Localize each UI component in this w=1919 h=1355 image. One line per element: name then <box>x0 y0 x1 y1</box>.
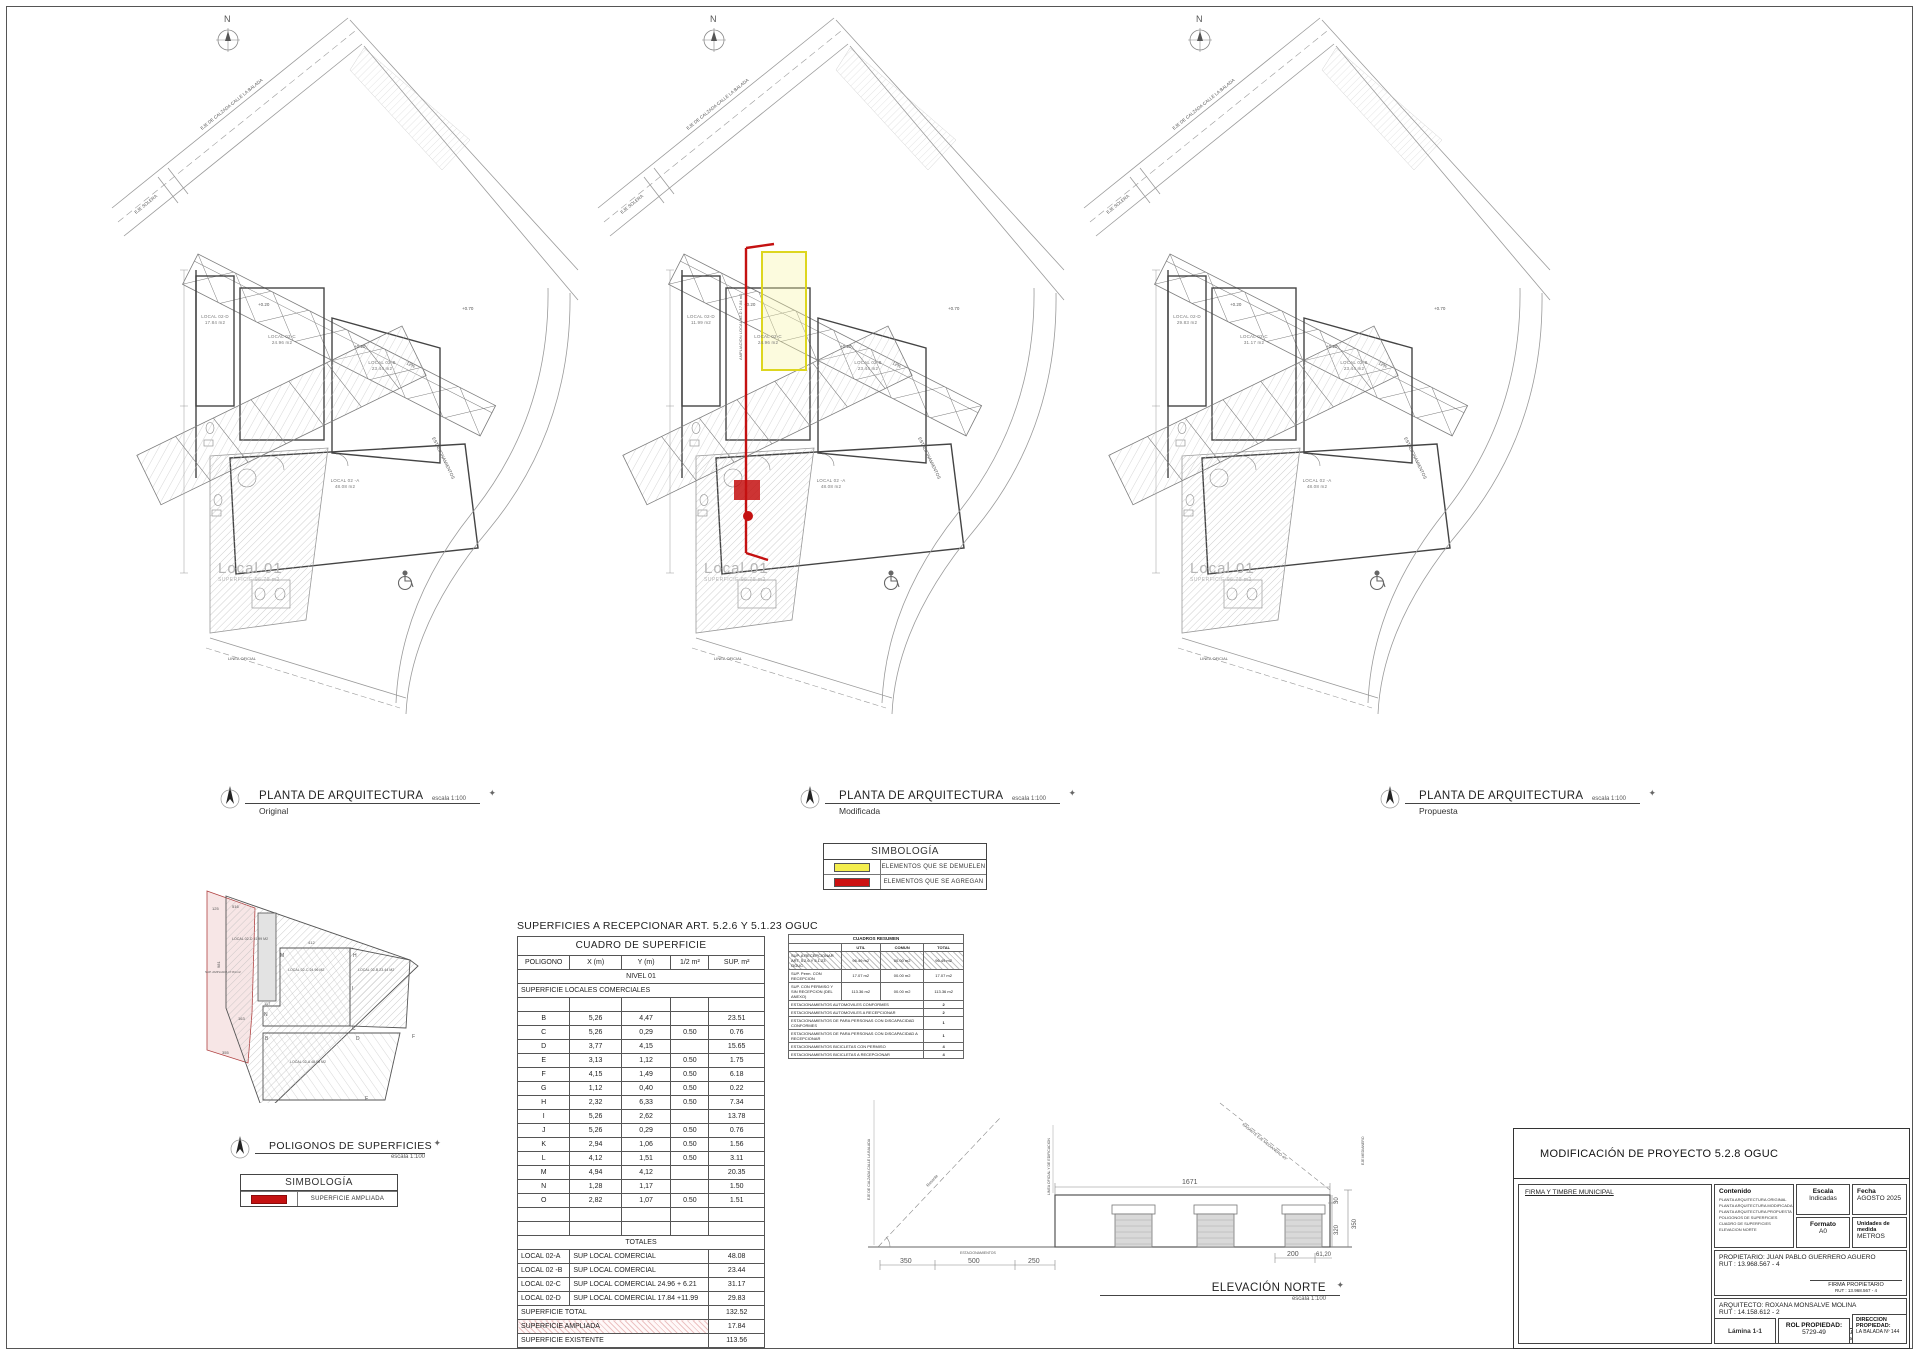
total-desc: SUP LOCAL COMERCIAL 17.84 +11.99 <box>570 1292 709 1306</box>
cell-poligono: D <box>518 1040 570 1054</box>
cell-y: 0,29 <box>621 1026 671 1040</box>
symbology-modificada: SIMBOLOGÍA ELEMENTOS QUE SE DEMUELEN ELE… <box>823 843 987 890</box>
north-arrow-icon <box>229 1134 251 1164</box>
resumen-park-row: ESTACIONAMIENTOS AUTOMOVILES CONFORMES 2 <box>789 1000 964 1008</box>
room-d-name: LOCAL 02-D <box>687 314 715 319</box>
polygon-row: M 4,94 4,12 20.35 <box>518 1166 765 1180</box>
pol-letter-D: D <box>356 1036 360 1042</box>
cell-poligono: H <box>518 1096 570 1110</box>
summary-value: 17.84 <box>709 1320 765 1334</box>
scale-icon: ✦ <box>433 1138 441 1149</box>
polygon-row: B 5,26 4,47 23.51 <box>518 1012 765 1026</box>
room-a-area: 48.08 m2 <box>1307 484 1327 489</box>
rasante-label: Rasante <box>925 1173 939 1188</box>
contenido-cell: Contenido PLANTA ARQUITECTURA ORIGINALPL… <box>1714 1184 1794 1248</box>
totales-header: TOTALES <box>518 1236 765 1250</box>
title-plan-modificada: PLANTA DE ARQUITECTURAescala 1:100 Modif… <box>825 790 1060 816</box>
resumen-headers: UTIL COMUN TOTAL <box>789 943 964 951</box>
cell-y: 1,06 <box>621 1138 671 1152</box>
empty-row <box>518 1222 765 1236</box>
local01-label: Local 01SUPERFICIE 96.70 m2 <box>704 560 769 583</box>
resumen-park-row: ESTACIONAMIENTOS DE PARA PERSONAS CON DI… <box>789 1029 964 1042</box>
park-label: ESTACIONAMIENTOS BICICLETAS CON PERMISO <box>789 1042 924 1050</box>
total-value: 48.08 <box>709 1250 765 1264</box>
firma-municipal-label: FIRMA Y TIMBRE MUNICIPAL <box>1519 1185 1711 1196</box>
cell-x: 5,26 <box>570 1124 621 1138</box>
resumen-label: SUP. Perm. CON RECEPCION <box>789 969 842 982</box>
room-c-name: LOCAL 02-C <box>268 334 296 339</box>
room-a-name: LOCAL 02 -A <box>817 478 846 483</box>
cell-half: 0.50 <box>671 1026 709 1040</box>
cell-poligono: G <box>518 1082 570 1096</box>
cell-half: 0.50 <box>671 1194 709 1208</box>
pol-room-c: LOCAL 02-C 24.96 M2 <box>288 968 324 972</box>
pol-dim-125: 125 <box>212 906 219 911</box>
summary-row: SUPERFICIE AMPLIADA 17.84 <box>518 1320 765 1334</box>
cell-half <box>671 1040 709 1054</box>
roller-doors <box>1112 1205 1325 1247</box>
resumen-total: 96.49 m2 <box>924 951 964 969</box>
pol-room-d: LOCAL 02-D 11.99 M2 <box>232 937 268 941</box>
cell-sup: 15.65 <box>709 1040 765 1054</box>
cell-y: 4,47 <box>621 1012 671 1026</box>
cell-sup: 23.51 <box>709 1012 765 1026</box>
pol-dim-117: 117 <box>264 1001 271 1006</box>
pol-letter-M: M <box>280 953 284 959</box>
cell-sup: 3.11 <box>709 1152 765 1166</box>
total-desc: SUP LOCAL COMERCIAL <box>570 1250 709 1264</box>
room-d-name: LOCAL 02-D <box>201 314 229 319</box>
firma-propietario: FIRMA PROPIETARIO RUT : 13.968.567 - 4 <box>1810 1280 1902 1293</box>
polygon-row: D 3,77 4,15 15.65 <box>518 1040 765 1054</box>
dim-320: 320 <box>1334 1224 1340 1235</box>
room-b-name: LOCAL 02-B <box>854 360 881 365</box>
cell-half: 0.50 <box>671 1124 709 1138</box>
empty-row <box>518 998 765 1012</box>
poligonos-diagram: M N B C D E F H I 125 516 412 981 163 35… <box>160 878 430 1103</box>
cell-y: 0,29 <box>621 1124 671 1138</box>
room-b-name: LOCAL 02-B <box>1340 360 1367 365</box>
polygon-row: N 1,28 1,17 1.50 <box>518 1180 765 1194</box>
pol-dim-412: 412 <box>308 940 315 945</box>
column-headers: POLIGONO X (m) Y (m) 1/2 m² SUP. m² <box>518 956 765 970</box>
resumen-park-row: ESTACIONAMIENTOS BICICLETAS A RECEPCIONA… <box>789 1050 964 1058</box>
firma-municipal-cell: FIRMA Y TIMBRE MUNICIPAL <box>1518 1184 1712 1344</box>
room-c-area: 24.96 m2 <box>272 340 292 345</box>
cell-poligono: L <box>518 1152 570 1166</box>
legend-label: ELEMENTOS QUE SE AGREGAN <box>881 879 986 885</box>
cell-half <box>671 1110 709 1124</box>
summary-label: SUPERFICIE TOTAL <box>518 1306 709 1320</box>
room-c-name: LOCAL 02-C <box>1240 334 1268 339</box>
cell-x: 4,94 <box>570 1166 621 1180</box>
title-block: MODIFICACIÓN DE PROYECTO 5.2.8 OGUC FIRM… <box>1513 1128 1910 1349</box>
scale-icon: ✦ <box>488 788 496 799</box>
cell-y: 6,33 <box>621 1096 671 1110</box>
park-value: 4 <box>924 1050 964 1058</box>
cell-poligono: O <box>518 1194 570 1208</box>
cell-half <box>671 1012 709 1026</box>
scale-icon: ✦ <box>1336 1280 1344 1291</box>
pol-amp-label: SUP. AMPLIADA 17.84 m2 <box>205 970 241 974</box>
cell-y: 1,49 <box>621 1068 671 1082</box>
plan-modificada: AMPLIACION LOCAL 02-D 17.84 m2 LOCAL 02-… <box>596 8 1066 763</box>
resumen-label: SUP. A RECEPCIONAR ART. 5.2.6 Y 5.1.23 O… <box>789 951 842 969</box>
linea-oficial-label: LINEA OFICIAL Y DE EDIFICACION <box>1047 1138 1051 1195</box>
north-arrow-icon <box>799 784 821 814</box>
polygon-row: L 4,12 1,51 0.50 3.11 <box>518 1152 765 1166</box>
cell-half: 0.50 <box>671 1082 709 1096</box>
empty-row <box>518 1208 765 1222</box>
cell-x: 3,13 <box>570 1054 621 1068</box>
resumen-park-row: ESTACIONAMIENTOS BICICLETAS CON PERMISO … <box>789 1042 964 1050</box>
cell-sup: 1.51 <box>709 1194 765 1208</box>
park-label: ESTACIONAMIENTOS DE PARA PERSONAS CON DI… <box>789 1016 924 1029</box>
title-poligonos: POLIGONOS DE SUPERFICIES escala 1:100 ✦ <box>255 1140 425 1160</box>
north-arrow-icon <box>1379 784 1401 814</box>
total-row: LOCAL 02-C SUP LOCAL COMERCIAL 24.96 + 6… <box>518 1278 765 1292</box>
total-local: LOCAL 02-A <box>518 1250 570 1264</box>
title-plan-original: PLANTA DE ARQUITECTURAescala 1:100 Origi… <box>245 790 480 816</box>
cell-sup: 0.76 <box>709 1026 765 1040</box>
pol-letter-N: N <box>264 1012 268 1018</box>
fecha-cell: Fecha AGOSTO 2025 <box>1852 1184 1907 1215</box>
room-b-area: 23.44 m2 <box>1344 366 1364 371</box>
legend-swatch <box>824 875 881 889</box>
title-elevacion: ELEVACIÓN NORTE escala 1:100 ✦ <box>1100 1282 1340 1302</box>
cell-half <box>671 1166 709 1180</box>
cell-half: 0.50 <box>671 1054 709 1068</box>
escala-cell: Escala Indicadas <box>1796 1184 1850 1215</box>
cell-half: 0.50 <box>671 1152 709 1166</box>
total-row: LOCAL 02 -B SUP LOCAL COMERCIAL 23.44 <box>518 1264 765 1278</box>
scale-icon: ✦ <box>1648 788 1656 799</box>
resumen-total: 113.36 m2 <box>924 982 964 1000</box>
cell-sup: 1.75 <box>709 1054 765 1068</box>
ampliacion-label: AMPLIACION LOCAL 02-D 17.84 m2 <box>738 293 743 360</box>
project-title: MODIFICACIÓN DE PROYECTO 5.2.8 OGUC <box>1514 1148 1778 1160</box>
cell-sup: 1.50 <box>709 1180 765 1194</box>
north-arrow-icon <box>219 784 241 814</box>
pol-dim-516: 516 <box>232 904 239 909</box>
summary-value: 113.56 <box>709 1334 765 1348</box>
total-desc: SUP LOCAL COMERCIAL 24.96 + 6.21 <box>570 1278 709 1292</box>
cell-x: 2,94 <box>570 1138 621 1152</box>
scale-icon: ✦ <box>1068 788 1076 799</box>
summary-value: 132.52 <box>709 1306 765 1320</box>
room-d-area: 11.99 m2 <box>691 320 711 325</box>
pol-letter-H: H <box>353 953 357 959</box>
group-row: SUPERFICIE LOCALES COMERCIALES <box>518 984 765 998</box>
resumen-comun: 00.00 m2 <box>881 969 924 982</box>
symbology-poligonos: SIMBOLOGÍA SUPERFICIE AMPLIADA <box>240 1174 398 1207</box>
resumen-comun: 00.00 m2 <box>881 982 924 1000</box>
resumen-park-row: ESTACIONAMIENTOS DE PARA PERSONAS CON DI… <box>789 1016 964 1029</box>
pol-letter-F: F <box>412 1034 415 1040</box>
resumen-sup-row: SUP. A RECEPCIONAR ART. 5.2.6 Y 5.1.23 O… <box>789 951 964 969</box>
room-c-name: LOCAL 02-C <box>754 334 782 339</box>
summary-label: SUPERFICIE EXISTENTE <box>518 1334 709 1348</box>
room-c-area: 24.96 m2 <box>758 340 778 345</box>
cell-x: 4,12 <box>570 1152 621 1166</box>
local01-label: Local 01SUPERFICIE 96.70 m2 <box>218 560 283 583</box>
room-a-name: LOCAL 02 -A <box>331 478 360 483</box>
rol-cell: ROL PROPIEDAD: 5729-49 <box>1778 1318 1850 1344</box>
polygon-row: J 5,26 0,29 0.50 0.76 <box>518 1124 765 1138</box>
rasante-medianero-label: RASANTE EJE MEDIANERO 45° <box>1241 1123 1288 1162</box>
total-local: LOCAL 02-D <box>518 1292 570 1306</box>
total-row: LOCAL 02-A SUP LOCAL COMERCIAL 48.08 <box>518 1250 765 1264</box>
polygon-row: C 5,26 0,29 0.50 0.76 <box>518 1026 765 1040</box>
cell-x: 3,77 <box>570 1040 621 1054</box>
cell-sup: 13.78 <box>709 1110 765 1124</box>
formato-cell: Formato A0 <box>1796 1217 1850 1248</box>
cell-poligono: C <box>518 1026 570 1040</box>
direccion-cell: DIRECCION PROPIEDAD: LA BALADA Nº 144 <box>1852 1314 1907 1344</box>
polygon-row: K 2,94 1,06 0.50 1.56 <box>518 1138 765 1152</box>
polygon-row: G 1,12 0,40 0.50 0.22 <box>518 1082 765 1096</box>
title-plan-propuesta: PLANTA DE ARQUITECTURAescala 1:100 Propu… <box>1405 790 1640 816</box>
polygon-row: F 4,15 1,49 0.50 6.18 <box>518 1068 765 1082</box>
modification-overlay: AMPLIACION LOCAL 02-D 17.84 m2 <box>596 8 1066 758</box>
summary-label: SUPERFICIE AMPLIADA <box>518 1320 709 1334</box>
cell-poligono: E <box>518 1054 570 1068</box>
cell-x: 1,12 <box>570 1082 621 1096</box>
cell-half: 0.50 <box>671 1096 709 1110</box>
total-value: 31.17 <box>709 1278 765 1292</box>
table-header: CUADRO DE SUPERFICIE <box>518 937 765 956</box>
surface-table-title: SUPERFICIES A RECEPCIONAR ART. 5.2.6 Y 5… <box>517 920 765 932</box>
resumen-label: SUP. CON PERMISO Y SIN RECEPCION (DEL AN… <box>789 982 842 1000</box>
total-desc: SUP LOCAL COMERCIAL <box>570 1264 709 1278</box>
park-label: ESTACIONAMIENTOS AUTOMOVILES A RECEPCION… <box>789 1008 924 1016</box>
park-value: 2 <box>924 1000 964 1008</box>
cell-half: 0.50 <box>671 1068 709 1082</box>
cuadro-superficie: SUPERFICIES A RECEPCIONAR ART. 5.2.6 Y 5… <box>517 920 765 1348</box>
resumen-sup-row: SUP. CON PERMISO Y SIN RECEPCION (DEL AN… <box>789 982 964 1000</box>
dim-6120: 61,20 <box>1316 1252 1332 1258</box>
cell-poligono: K <box>518 1138 570 1152</box>
park-label: ESTACIONAMIENTOS AUTOMOVILES CONFORMES <box>789 1000 924 1008</box>
cell-sup: 0.22 <box>709 1082 765 1096</box>
dim-1671: 1671 <box>1182 1179 1198 1186</box>
cell-x: 5,26 <box>570 1110 621 1124</box>
symbology-title: SIMBOLOGÍA <box>241 1175 397 1191</box>
cell-x: 5,26 <box>570 1026 621 1040</box>
plan-original: LOCAL 02-D17.84 m2 LOCAL 02-C24.96 m2 LO… <box>110 8 580 763</box>
cell-poligono: I <box>518 1110 570 1124</box>
cell-sup: 1.56 <box>709 1138 765 1152</box>
dim-350l: 350 <box>900 1258 912 1265</box>
resumen-title: CUADROS RESUMEN <box>789 935 964 944</box>
room-d-area: 29.83 m2 <box>1177 320 1197 325</box>
cell-half: 0.50 <box>671 1138 709 1152</box>
cell-poligono: B <box>518 1012 570 1026</box>
cell-sup: 0.76 <box>709 1124 765 1138</box>
park-value: 1 <box>924 1016 964 1029</box>
park-value: 1 <box>924 1029 964 1042</box>
lamina-cell: Lámina 1-1 <box>1714 1318 1776 1344</box>
cell-x: 2,82 <box>570 1194 621 1208</box>
legend-swatch <box>824 860 881 874</box>
unidades-cell: Unidades de medida METROS <box>1852 1217 1907 1248</box>
cell-poligono: M <box>518 1166 570 1180</box>
room-c-area: 31.17 m2 <box>1244 340 1264 345</box>
pol-dim-355: 355 <box>222 1050 229 1055</box>
pol-letter-I: I <box>352 986 353 992</box>
cell-y: 1,51 <box>621 1152 671 1166</box>
total-local: LOCAL 02-C <box>518 1278 570 1292</box>
cuadros-resumen: CUADROS RESUMEN UTIL COMUN TOTAL SUP. A … <box>788 934 964 1059</box>
legend-row: ELEMENTOS QUE SE DEMUELEN <box>824 860 986 874</box>
cell-x: 4,15 <box>570 1068 621 1082</box>
drawing-sheet: EJE DE CALZADA CALLE LA BALADA EJE SOLER… <box>0 0 1919 1355</box>
legend-row: ELEMENTOS QUE SE AGREGAN <box>824 874 986 889</box>
room-b-area: 23.44 m2 <box>372 366 392 371</box>
pol-letter-C: C <box>352 1026 356 1032</box>
total-value: 23.44 <box>709 1264 765 1278</box>
cell-poligono: F <box>518 1068 570 1082</box>
cell-y: 0,40 <box>621 1082 671 1096</box>
park-value: 4 <box>924 1042 964 1050</box>
dim-250: 250 <box>1028 1258 1040 1265</box>
cell-x: 2,32 <box>570 1096 621 1110</box>
pol-dim-163: 163 <box>238 1016 245 1021</box>
cell-x: 5,26 <box>570 1012 621 1026</box>
pol-room-b: LOCAL 02-B 23.44 M2 <box>358 968 394 972</box>
polygon-row: O 2,82 1,07 0.50 1.51 <box>518 1194 765 1208</box>
contenido-item: ELEVACION NORTE <box>1719 1227 1793 1233</box>
room-a-area: 48.08 m2 <box>335 484 355 489</box>
legend-swatch <box>241 1192 298 1206</box>
room-b-area: 23.44 m2 <box>858 366 878 371</box>
polygon-row: E 3,13 1,12 0.50 1.75 <box>518 1054 765 1068</box>
resumen-total: 17.07 m2 <box>924 969 964 982</box>
resumen-util: 113.36 m2 <box>841 982 880 1000</box>
cell-half <box>671 1180 709 1194</box>
cell-y: 2,62 <box>621 1110 671 1124</box>
cell-y: 4,12 <box>621 1166 671 1180</box>
cell-sup: 20.35 <box>709 1166 765 1180</box>
cell-y: 4,15 <box>621 1040 671 1054</box>
cell-y: 1,12 <box>621 1054 671 1068</box>
plan-propuesta: LOCAL 02-D29.83 m2 LOCAL 02-C31.17 m2 LO… <box>1082 8 1552 763</box>
eje-calzada-label: EJE DE CALZADA CALLE LA BALADA <box>867 1138 871 1200</box>
dim-200: 200 <box>1287 1251 1299 1258</box>
room-a-area: 48.08 m2 <box>821 484 841 489</box>
propietario-cell: PROPIETARIO: JUAN PABLO GUERRERO AGUERO … <box>1714 1250 1907 1296</box>
titleblock-band: MODIFICACIÓN DE PROYECTO 5.2.8 OGUC <box>1514 1129 1909 1179</box>
dim-30: 30 <box>1334 1197 1340 1204</box>
resumen-util: 17.07 m2 <box>841 969 880 982</box>
elev-estacionamientos: ESTACIONAMIENTOS <box>960 1251 997 1255</box>
legend-label: SUPERFICIE AMPLIADA <box>298 1196 397 1202</box>
cell-y: 1,07 <box>621 1194 671 1208</box>
resumen-sup-row: SUP. Perm. CON RECEPCION 17.07 m2 00.00 … <box>789 969 964 982</box>
room-d-name: LOCAL 02-D <box>1173 314 1201 319</box>
cell-poligono: N <box>518 1180 570 1194</box>
park-value: 2 <box>924 1008 964 1016</box>
room-b-name: LOCAL 02-B <box>368 360 395 365</box>
cell-y: 1,17 <box>621 1180 671 1194</box>
pol-dim-981: 981 <box>216 961 221 968</box>
resumen-comun: 00.00 m2 <box>881 951 924 969</box>
symbology-title: SIMBOLOGÍA <box>824 844 986 860</box>
summary-row: SUPERFICIE EXISTENTE 113.56 <box>518 1334 765 1348</box>
polygon-row: H 2,32 6,33 0.50 7.34 <box>518 1096 765 1110</box>
resumen-util: 96.49 m2 <box>841 951 880 969</box>
summary-row: SUPERFICIE TOTAL 132.52 <box>518 1306 765 1320</box>
resumen-park-row: ESTACIONAMIENTOS AUTOMOVILES A RECEPCION… <box>789 1008 964 1016</box>
total-row: LOCAL 02-D SUP LOCAL COMERCIAL 17.84 +11… <box>518 1292 765 1306</box>
nivel-row: NIVEL 01 <box>518 970 765 984</box>
room-d-area: 17.84 m2 <box>205 320 225 325</box>
total-value: 29.83 <box>709 1292 765 1306</box>
polygon-row: I 5,26 2,62 13.78 <box>518 1110 765 1124</box>
dim-500: 500 <box>968 1258 980 1265</box>
pol-room-a: LOCAL 02-A 48.08 M2 <box>290 1060 326 1064</box>
cell-x: 1,28 <box>570 1180 621 1194</box>
room-a-name: LOCAL 02 -A <box>1303 478 1332 483</box>
legend-label: ELEMENTOS QUE SE DEMUELEN <box>881 864 986 870</box>
cell-sup: 7.34 <box>709 1096 765 1110</box>
total-local: LOCAL 02 -B <box>518 1264 570 1278</box>
dim-350r: 350 <box>1352 1218 1358 1229</box>
cell-sup: 6.18 <box>709 1068 765 1082</box>
park-label: ESTACIONAMIENTOS DE PARA PERSONAS CON DI… <box>789 1029 924 1042</box>
eje-medianero-label: EJE MEDIANERO <box>1361 1136 1365 1165</box>
cell-poligono: J <box>518 1124 570 1138</box>
park-label: ESTACIONAMIENTOS BICICLETAS A RECEPCIONA… <box>789 1050 924 1058</box>
local01-label: Local 01SUPERFICIE 96.70 m2 <box>1190 560 1255 583</box>
